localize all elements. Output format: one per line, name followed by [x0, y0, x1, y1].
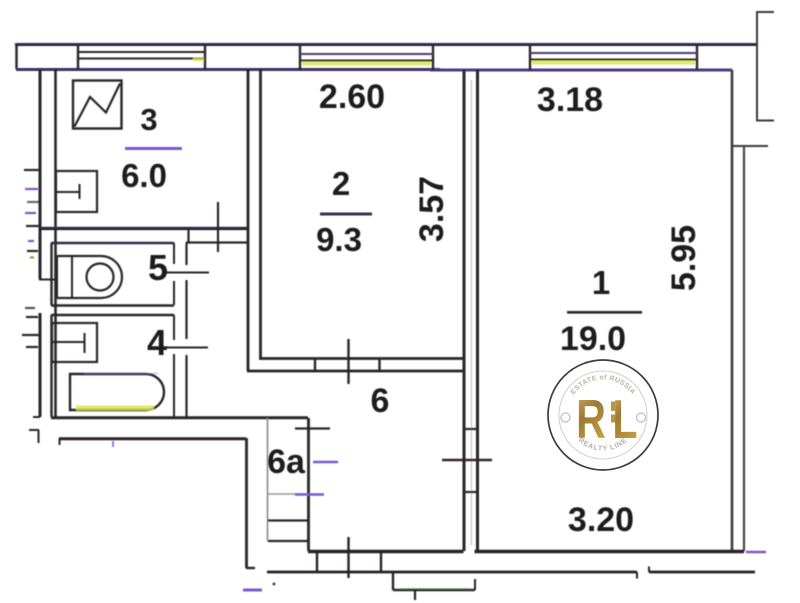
svg-text:3.18: 3.18	[537, 81, 603, 119]
svg-text:6a: 6a	[267, 443, 306, 481]
svg-text:9.3: 9.3	[316, 221, 362, 258]
svg-text:1: 1	[592, 264, 610, 301]
svg-text:3.57: 3.57	[413, 176, 451, 242]
svg-text:2: 2	[332, 165, 350, 202]
svg-text:3.20: 3.20	[568, 501, 634, 539]
svg-text:6: 6	[371, 382, 390, 420]
svg-text:3: 3	[140, 102, 157, 137]
svg-text:L: L	[612, 389, 637, 450]
svg-text:5: 5	[148, 247, 168, 288]
svg-text:2.60: 2.60	[319, 78, 385, 116]
svg-text:6.0: 6.0	[121, 157, 167, 194]
svg-text:R: R	[576, 389, 606, 450]
svg-text:4: 4	[147, 322, 167, 363]
svg-text:5.95: 5.95	[665, 225, 703, 291]
svg-text:19.0: 19.0	[560, 320, 626, 358]
